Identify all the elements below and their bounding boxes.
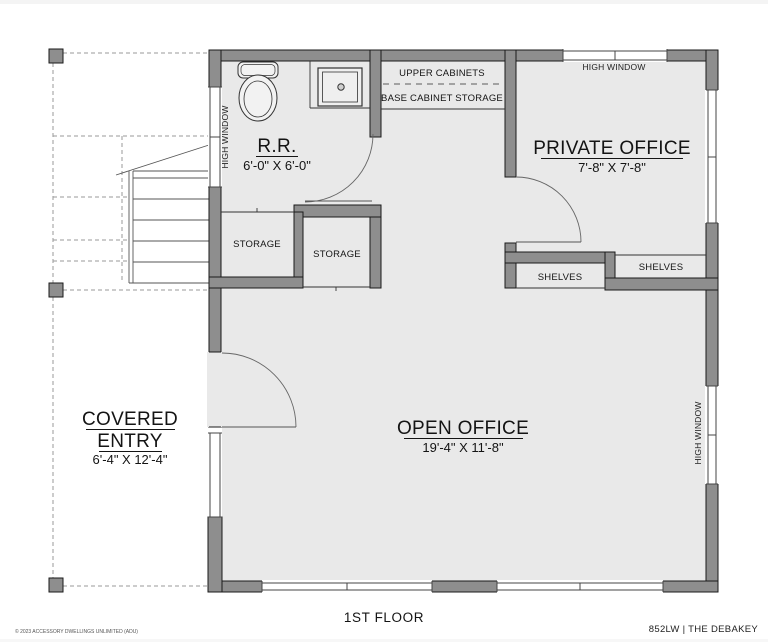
- entry-post-bottom: [49, 578, 63, 592]
- exterior-wall-bottom-right: [663, 581, 718, 592]
- copyright-note: © 2023 ACCESSORY DWELLINGS UNLIMITED (AD…: [15, 628, 138, 635]
- shelves-wall-upper: [505, 252, 615, 263]
- exterior-wall-right-upper-stub: [706, 50, 718, 90]
- private-office-door-stub: [505, 243, 516, 288]
- stair-break-line: [116, 145, 209, 175]
- plan-id: 852LW | THE DEBAKEY: [649, 624, 759, 635]
- exterior-wall-left-lower: [208, 517, 222, 592]
- base-cabinet-storage-label: BASE CABINET STORAGE: [381, 93, 503, 104]
- page-top-border: [0, 0, 768, 4]
- floor-title: 1ST FLOOR: [344, 610, 424, 625]
- storage-right-label: STORAGE: [313, 249, 361, 260]
- private-office-label: PRIVATE OFFICE: [533, 138, 691, 159]
- high-window-left-label: HIGH WINDOW: [220, 105, 230, 168]
- covered-entry-dims: 6'-4" X 12'-4": [93, 452, 168, 467]
- shelves-left-label: SHELVES: [538, 272, 583, 283]
- entry-post-middle: [49, 283, 63, 297]
- upper-cabinets-label: UPPER CABINETS: [399, 68, 485, 79]
- storage-north-wall: [294, 205, 381, 217]
- storage-south-wall: [209, 277, 303, 288]
- covered-entry-outline: [53, 53, 209, 586]
- exterior-wall-left-upper: [209, 50, 221, 87]
- floor-plan-sheet: R.R. 6'-0" X 6'-0" PRIVATE OFFICE 7'-8" …: [0, 0, 768, 642]
- exterior-wall-right-lower: [706, 484, 718, 592]
- toilet-icon: [238, 62, 278, 121]
- shelves-wall-lower: [605, 278, 718, 290]
- open-office-label: OPEN OFFICE: [397, 418, 529, 439]
- floor-plan: R.R. 6'-0" X 6'-0" PRIVATE OFFICE 7'-8" …: [0, 0, 768, 642]
- high-window-right-label: HIGH WINDOW: [693, 401, 703, 464]
- private-office-door-opening: [504, 178, 517, 242]
- restroom-east-wall: [370, 50, 381, 137]
- open-office-dims: 19'-4" X 11'-8": [422, 440, 504, 455]
- stairs: [116, 145, 209, 283]
- exterior-wall-right-middle: [706, 223, 718, 386]
- storage-left-label: STORAGE: [233, 239, 281, 250]
- sink-icon: [318, 68, 362, 106]
- entry-posts: [49, 49, 63, 592]
- restroom-door-opening: [369, 138, 382, 204]
- private-office-west-wall: [505, 50, 516, 177]
- covered-entry-label-line2: ENTRY: [97, 431, 163, 452]
- restroom-dims: 6'-0" X 6'-0": [243, 158, 311, 173]
- exterior-wall-bottom-middle: [432, 581, 497, 592]
- entry-post-top: [49, 49, 63, 63]
- high-window-top-label: HIGH WINDOW: [582, 62, 645, 72]
- restroom-label: R.R.: [257, 136, 296, 157]
- entry-door-opening: [207, 352, 223, 427]
- building-floor: [209, 50, 718, 592]
- shelves-right-label: SHELVES: [639, 262, 684, 273]
- exterior-wall-left-middle: [209, 187, 221, 352]
- private-office-dims: 7'-8" X 7'-8": [578, 160, 646, 175]
- covered-entry-label-line1: COVERED: [82, 409, 178, 430]
- sink-drain: [338, 84, 344, 90]
